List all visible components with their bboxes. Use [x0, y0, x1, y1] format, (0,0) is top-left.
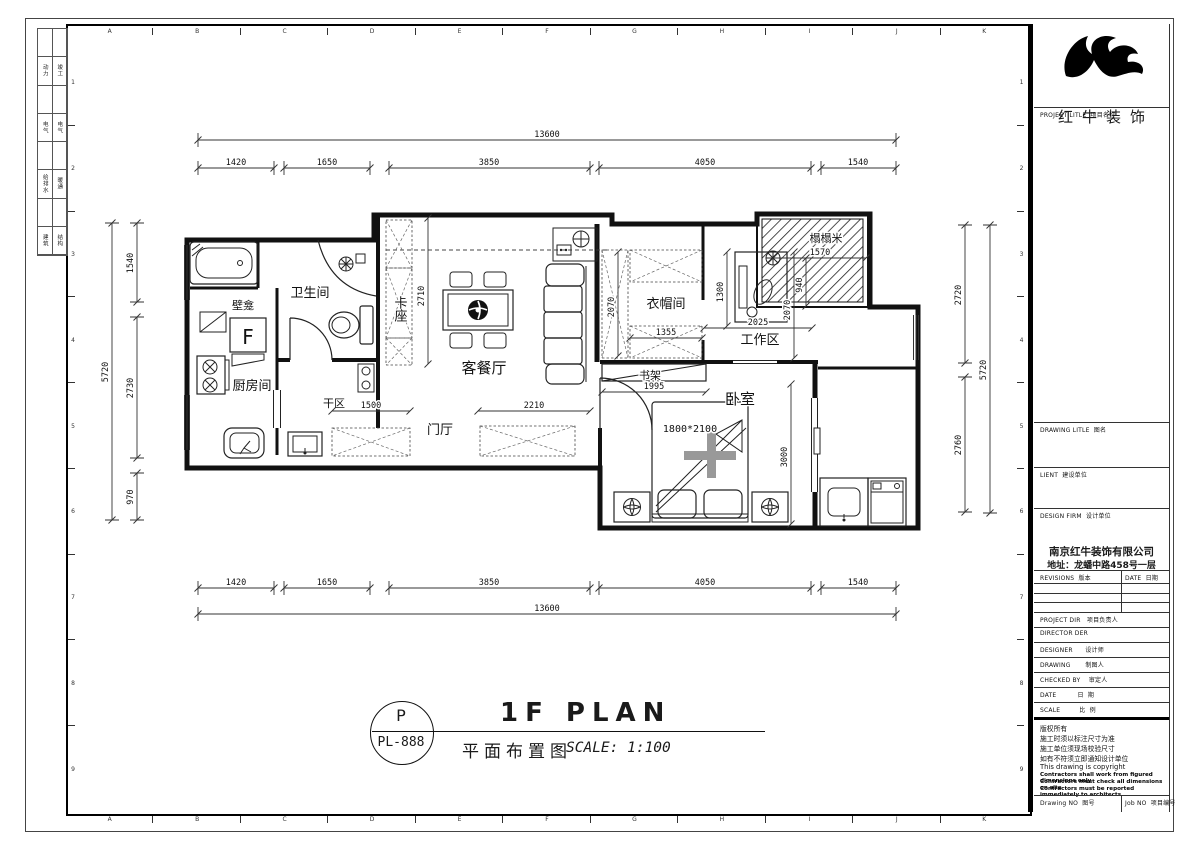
- washing-machine: [868, 478, 906, 526]
- floor-drain-valves: [358, 364, 374, 392]
- dim: 3850: [479, 578, 499, 588]
- room-label-hall: 门厅: [427, 423, 453, 438]
- ac-equipment-box: [553, 228, 597, 261]
- room-label-living-dining: 客餐厅: [461, 359, 506, 377]
- dim: 1420: [226, 578, 246, 588]
- dry-area-basin: [288, 432, 322, 456]
- dim: 2720: [954, 285, 964, 305]
- nightstand-right: [752, 492, 788, 522]
- room-label-work-area: 工作区: [740, 333, 779, 348]
- room-label-tatami: 榻榻米: [810, 231, 843, 245]
- dim-left: 5720 1540 2730 970: [101, 220, 144, 524]
- room-label-bedroom: 卧室: [725, 390, 755, 408]
- dim: 1355: [656, 328, 676, 338]
- dim: 2730: [126, 378, 136, 398]
- dim: 2210: [524, 401, 544, 411]
- dim: 1540: [848, 578, 868, 588]
- dim-left-total: 5720: [101, 362, 111, 382]
- drawing-sheet: A B C D E F G H I J K A B C D E F G H I …: [0, 0, 1200, 845]
- sofa: [544, 264, 586, 384]
- bed: [652, 402, 748, 522]
- room-label-dry-area: 干区: [323, 397, 345, 410]
- room-label-cloakroom: 衣帽间: [646, 296, 685, 312]
- room-label-bathroom: 卫生间: [290, 286, 329, 301]
- floor-plan-svg: 卫生间 壁龛 厨房间 卡座 客餐厅 门厅 干区 衣帽间 工作区 榻榻米 书架 卧…: [0, 0, 1200, 845]
- dim: 4050: [695, 158, 715, 168]
- dim: 1995: [644, 382, 664, 392]
- room-label-booth: 卡座: [392, 296, 408, 323]
- dim-bottom: 1420 1650 3850 4050 1540 13600: [195, 578, 900, 621]
- room-label-kitchen: 厨房间: [232, 378, 271, 394]
- dim: 1650: [317, 158, 337, 168]
- room-label-niche: 壁龛: [232, 298, 254, 312]
- dim: 4050: [695, 578, 715, 588]
- dim: 3000: [780, 447, 790, 467]
- sliding-door-handle: [814, 428, 820, 454]
- balcony-basin: [820, 478, 868, 526]
- bed-runner: [684, 451, 736, 460]
- dining-table: [443, 272, 513, 348]
- dim: 1650: [317, 578, 337, 588]
- bathroom-door: [290, 318, 332, 360]
- dim: 2070: [783, 300, 793, 320]
- dim: 1500: [361, 401, 381, 411]
- dim: 2710: [417, 286, 427, 306]
- dim: 970: [126, 489, 136, 504]
- ceiling-fan-icon: [468, 300, 488, 320]
- room-label-bookshelf: 书架: [639, 369, 661, 382]
- vent-fan-icon: [339, 257, 353, 271]
- dim: 3850: [479, 158, 499, 168]
- dim-bottom-total: 13600: [534, 604, 560, 614]
- dim: 1570: [810, 248, 830, 258]
- fridge-label: F: [242, 325, 254, 349]
- dim-right: 2720 2760 5720: [954, 222, 997, 517]
- bed-size-label: 1800*2100: [663, 424, 717, 435]
- stove: [197, 356, 229, 394]
- dim: 1300: [716, 282, 726, 302]
- dim: 1420: [226, 158, 246, 168]
- kitchen-sink: [224, 428, 264, 458]
- dim: 1540: [126, 253, 136, 273]
- niche-shelf: [200, 312, 226, 332]
- dim: 1540: [848, 158, 868, 168]
- dim: 2025: [748, 318, 768, 328]
- dim: 2760: [954, 435, 964, 455]
- dim-top: 13600 1420 1650 3850 4050 1540: [195, 130, 900, 175]
- toilet: [329, 306, 373, 344]
- dim-right-total: 5720: [979, 360, 989, 380]
- kitchen-door-track: [274, 390, 281, 428]
- bathtub: [190, 242, 258, 284]
- dim-top-total: 13600: [534, 130, 560, 140]
- dim: 2070: [607, 297, 617, 317]
- dim: 940: [795, 277, 805, 292]
- tatami-platform: [757, 214, 868, 307]
- nightstand-left: [614, 492, 650, 522]
